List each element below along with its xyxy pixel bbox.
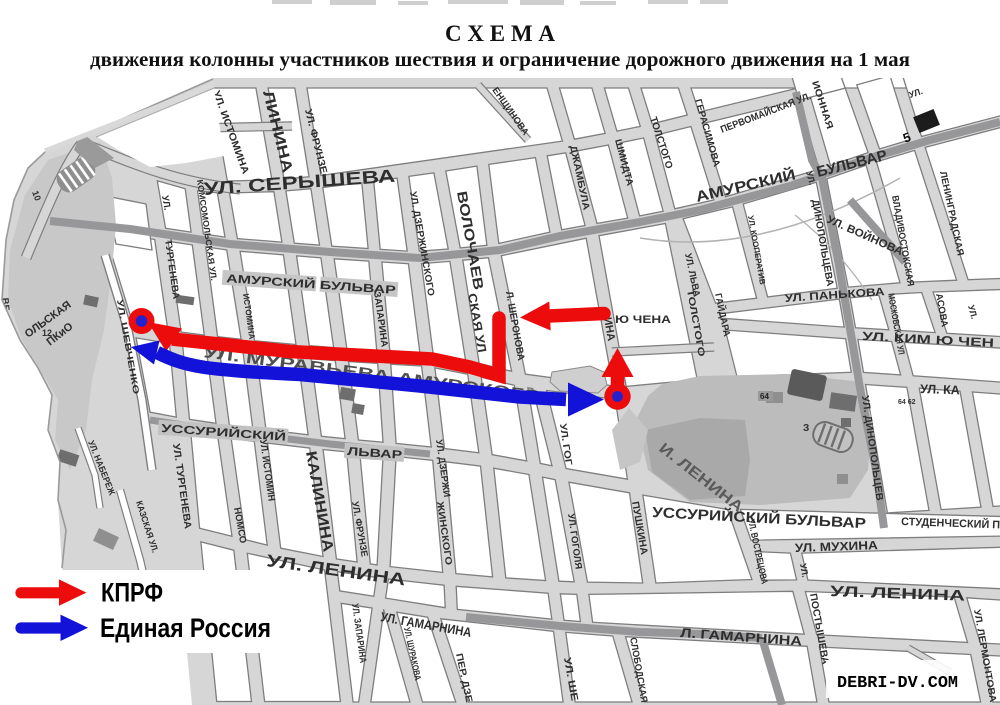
svg-text:Ю ЧЕНА: Ю ЧЕНА [615,314,671,326]
svg-text:Единая Россия: Единая Россия [100,613,271,643]
svg-text:УЛ. МУХИНА: УЛ. МУХИНА [795,538,879,555]
svg-text:З: З [803,423,809,434]
svg-text:С Х Е М А: С Х Е М А [445,21,555,46]
svg-text:DEBRI-DV.COM: DEBRI-DV.COM [837,673,958,692]
svg-text:УЛ. КА: УЛ. КА [920,382,960,397]
svg-text:движения колонны участников ше: движения колонны участников шествия и ог… [90,49,910,71]
svg-text:64: 64 [760,392,769,401]
svg-text:64 62: 64 62 [898,399,916,406]
svg-text:12: 12 [42,328,52,338]
svg-text:КПРФ: КПРФ [101,578,163,608]
